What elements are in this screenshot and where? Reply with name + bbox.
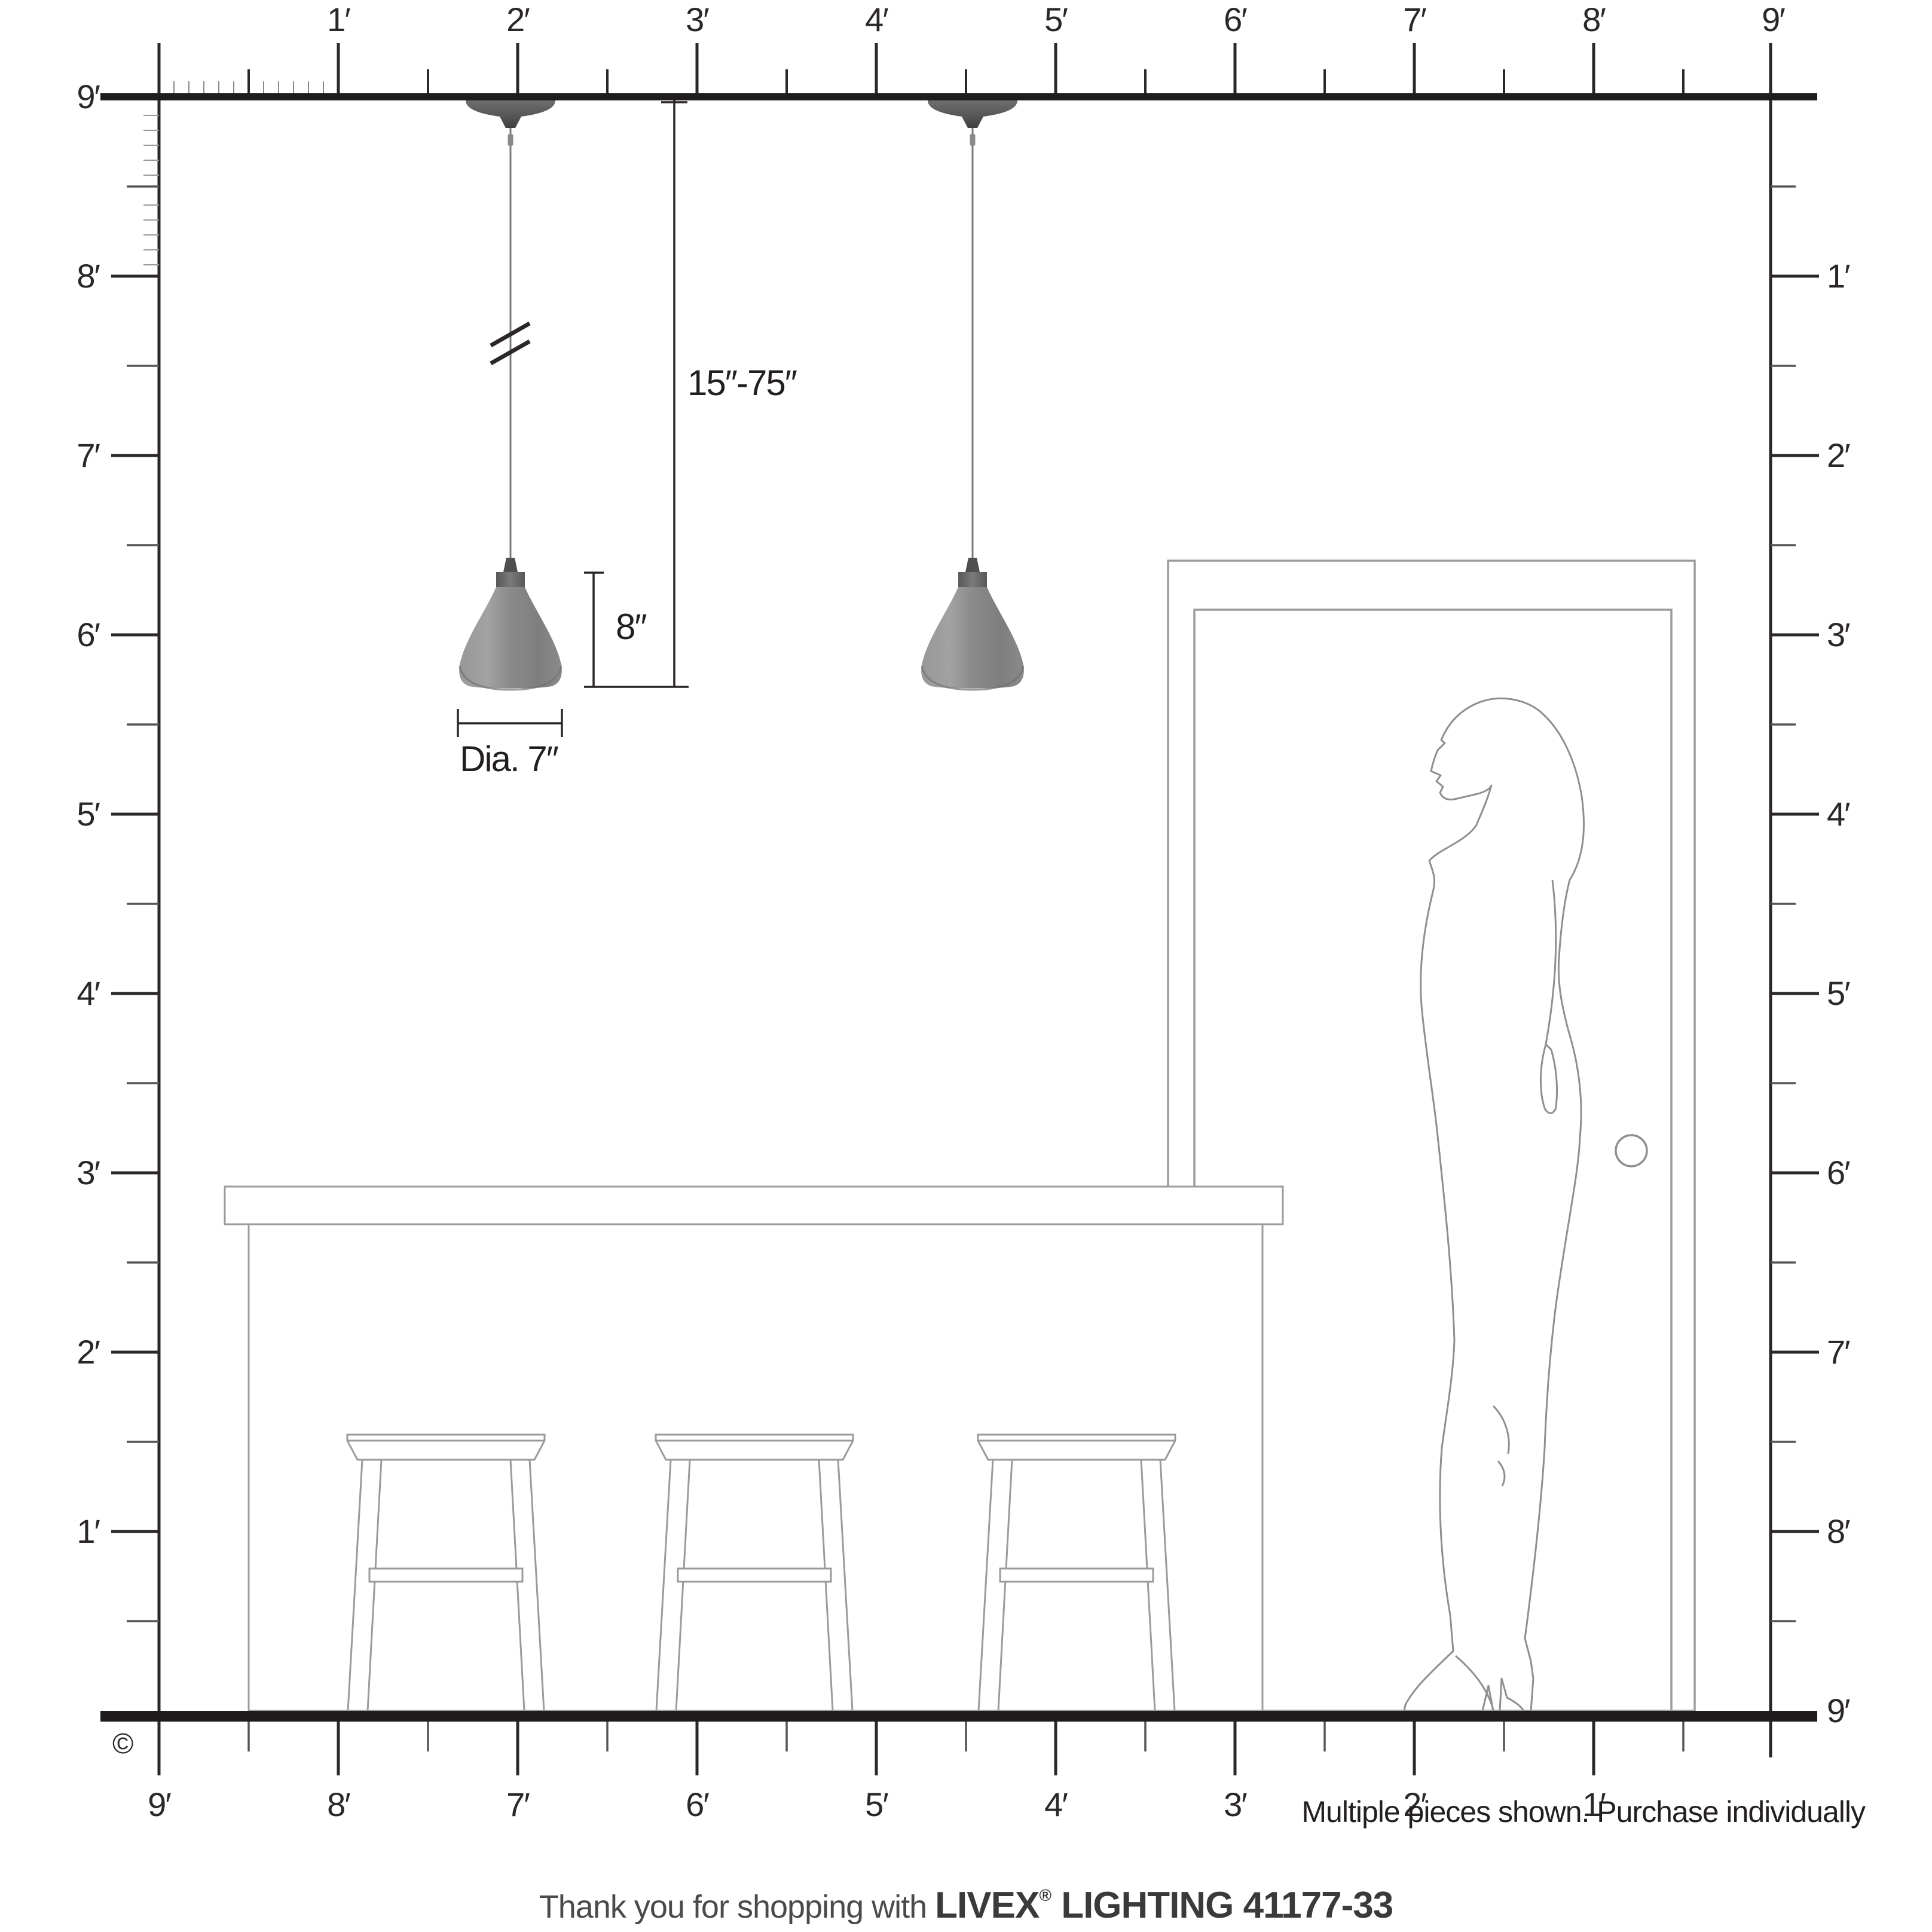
- bottom-half-ticks: [249, 1722, 1683, 1751]
- shade-diameter-dimension: Dia. 7″: [419, 738, 598, 779]
- right-ruler-label-9ft: 9′: [1827, 1692, 1899, 1729]
- ceiling-line: [100, 93, 1817, 100]
- footer-product-number: LIGHTING 41177-33: [1051, 1885, 1393, 1926]
- top-ruler-label-8ft: 8′: [1564, 1, 1624, 38]
- left-half-ticks: [127, 187, 159, 1621]
- top-ruler-label-1ft: 1′: [308, 1, 368, 38]
- registered-trademark-icon: ®: [1039, 1886, 1051, 1905]
- island-body: [249, 1224, 1262, 1711]
- cord-drop-dimension: 15″-75″: [687, 362, 796, 403]
- right-ruler-label-8ft: 8′: [1827, 1513, 1899, 1550]
- top-ruler-label-4ft: 4′: [846, 1, 906, 38]
- floor-line: [100, 1711, 1817, 1722]
- left-ruler-label-6ft: 6′: [33, 616, 99, 653]
- bottom-ruler-label-7ft: 7′: [488, 1786, 548, 1823]
- right-ruler-label-1ft: 1′: [1827, 258, 1899, 295]
- footer: Thank you for shopping with LIVEX® LIGHT…: [0, 1884, 1932, 1927]
- top-ruler-label-2ft: 2′: [488, 1, 548, 38]
- left-inch-ticks: [143, 115, 159, 265]
- copyright-mark: ©: [112, 1728, 133, 1760]
- right-ruler-label-3ft: 3′: [1827, 616, 1899, 653]
- top-ruler-label-9ft: 9′: [1743, 1, 1803, 38]
- bottom-foot-ticks: [159, 1722, 1594, 1775]
- right-ruler-label-7ft: 7′: [1827, 1334, 1899, 1371]
- top-ruler-label-6ft: 6′: [1205, 1, 1265, 38]
- pendant-1: [459, 100, 562, 690]
- right-half-ticks: [1771, 187, 1796, 1621]
- top-ruler-label-5ft: 5′: [1026, 1, 1086, 38]
- left-ruler-label-9ft: 9′: [33, 78, 99, 115]
- shade-height-dimension: 8″: [616, 606, 646, 647]
- left-ruler-label-4ft: 4′: [33, 975, 99, 1012]
- top-half-ticks: [249, 69, 1683, 97]
- left-ruler-label-5ft: 5′: [33, 796, 99, 833]
- right-ruler-label-4ft: 4′: [1827, 796, 1899, 833]
- right-ruler-label-6ft: 6′: [1827, 1154, 1899, 1191]
- woman-figure: [1404, 698, 1583, 1711]
- left-ruler-label-8ft: 8′: [33, 258, 99, 295]
- woman-outline: [1404, 698, 1583, 1711]
- diameter-dim-line: [458, 709, 562, 737]
- left-ruler-label-1ft: 1′: [33, 1513, 99, 1550]
- footer-prefix: Thank you for shopping with: [539, 1889, 935, 1925]
- left-ruler-label-3ft: 3′: [33, 1154, 99, 1191]
- top-ruler-label-3ft: 3′: [667, 1, 727, 38]
- diagram-canvas: [0, 0, 1932, 1932]
- island-countertop: [225, 1187, 1283, 1224]
- left-ruler-label-7ft: 7′: [33, 437, 99, 474]
- door-inner-frame: [1194, 610, 1671, 1711]
- door-knob: [1616, 1135, 1647, 1166]
- bottom-ruler-label-5ft: 5′: [846, 1786, 906, 1823]
- pendant-2: [921, 100, 1024, 690]
- bottom-ruler-label-9ft: 9′: [129, 1786, 189, 1823]
- right-ruler-label-5ft: 5′: [1827, 975, 1899, 1012]
- purchase-note: Multiple pieces shown. Purchase individu…: [956, 1795, 1865, 1829]
- dimension-diagram: 1′ 2′ 3′ 4′ 5′ 6′ 7′ 8′ 9′ 9′ 8′ 7′ 6′ 5…: [0, 0, 1932, 1932]
- left-ruler-label-2ft: 2′: [33, 1334, 99, 1371]
- bottom-ruler-label-6ft: 6′: [667, 1786, 727, 1823]
- bottom-ruler-label-8ft: 8′: [308, 1786, 368, 1823]
- right-ruler-label-2ft: 2′: [1827, 437, 1899, 474]
- footer-brand: LIVEX: [935, 1885, 1039, 1926]
- top-ruler-label-7ft: 7′: [1384, 1, 1444, 38]
